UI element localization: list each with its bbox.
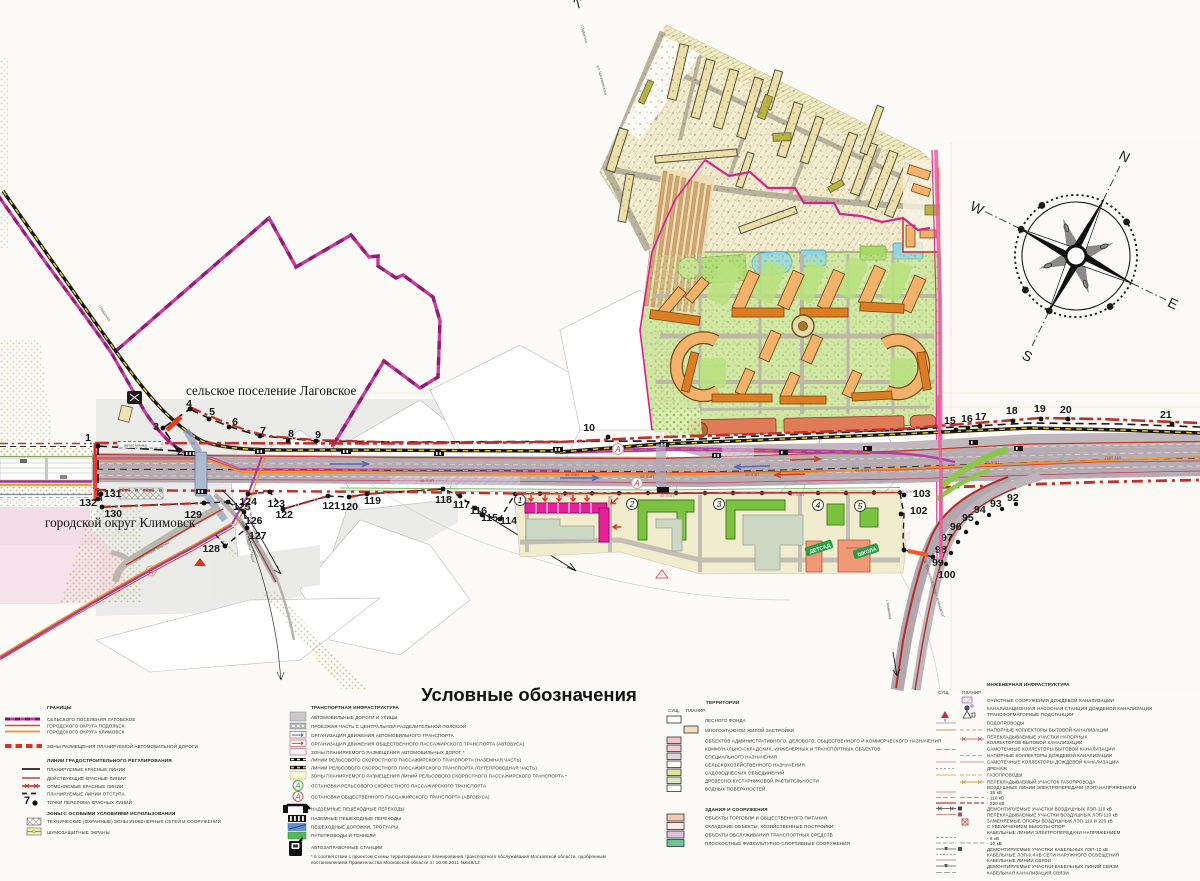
svg-text:ТЕРРИТОРИИ: ТЕРРИТОРИИ: [706, 700, 740, 705]
svg-text:- 35 кВ: - 35 кВ: [987, 790, 1002, 795]
svg-text:КАБЕЛЬНЫЕ ЛИНИИ ЭЛЕКТРОПЕРЕДАЧ: КАБЕЛЬНЫЕ ЛИНИИ ЭЛЕКТРОПЕРЕДАЧИ НАПРЯЖЕН…: [987, 830, 1121, 835]
svg-text:4: 4: [186, 398, 192, 410]
svg-text:САМОТЕЧНЫЕ КОЛЛЕКТОРЫ БЫТОВОЙ: САМОТЕЧНЫЕ КОЛЛЕКТОРЫ БЫТОВОЙ КАНАЛИЗАЦИ…: [987, 745, 1115, 752]
svg-text:ОСТАНОВКИ ОБЩЕСТВЕННОГО ПАССАЖ: ОСТАНОВКИ ОБЩЕСТВЕННОГО ПАССАЖИРСКОГО ТР…: [311, 795, 490, 800]
svg-text:45 ЛЭП: 45 ЛЭП: [560, 493, 574, 498]
svg-text:ДЕЙСТВУЮЩИЕ КРАСНЫЕ ЛИНИИ: ДЕЙСТВУЮЩИЕ КРАСНЫЕ ЛИНИИ: [47, 774, 126, 781]
svg-text:45 ЛЭП: 45 ЛЭП: [420, 478, 434, 483]
svg-text:2: 2: [629, 499, 635, 509]
svg-text:С УВЕЛИЧЕНИЕМ ВЫСОТЫ ОПОР: С УВЕЛИЧЕНИЕМ ВЫСОТЫ ОПОР: [987, 824, 1065, 829]
svg-text:ЗДАНИЯ И СООРУЖЕНИЯ: ЗДАНИЯ И СООРУЖЕНИЯ: [705, 807, 768, 812]
svg-text:* в соответствии с проектом Сх: * в соответствии с проектом Схемы террит…: [311, 853, 606, 859]
svg-text:МНОГОЭТАЖНОЙ ЖИЛОЙ ЗАСТРОЙКИ: МНОГОЭТАЖНОЙ ЖИЛОЙ ЗАСТРОЙКИ: [705, 726, 794, 733]
svg-text:КОММУНАЛЬНО-СКЛАДСКИХ, ИНЖЕНЕР: КОММУНАЛЬНО-СКЛАДСКИХ, ИНЖЕНЕРНЫХ И ТРАН…: [705, 747, 881, 752]
svg-text:- 110 кВ: - 110 кВ: [987, 796, 1004, 801]
svg-text:8: 8: [288, 428, 294, 440]
svg-text:ДЕМОНТИРУЕМЫЕ УЧАСТКИ ВОЗДУШНЫ: ДЕМОНТИРУЕМЫЕ УЧАСТКИ ВОЗДУШНЫХ ЛЭП-110 …: [987, 807, 1112, 812]
svg-text:САМОТЕЧНЫЕ КОЛЛЕКТОРЫ ДОЖДЕВОЙ: САМОТЕЧНЫЕ КОЛЛЕКТОРЫ ДОЖДЕВОЙ КАНАЛИЗАЦ…: [987, 758, 1119, 765]
svg-text:ВОЗДУШНЫЕ ЛИНИИ ЭЛЕКТРОПЕРЕДАЧ: ВОЗДУШНЫЕ ЛИНИИ ЭЛЕКТРОПЕРЕДАЧИ (ЛЭП) НА…: [987, 785, 1137, 790]
svg-text:1: 1: [518, 495, 523, 505]
svg-text:19: 19: [1034, 403, 1046, 415]
svg-text:САДОВОДЧЕСКИХ ОБЪЕДИНЕНИЙ: САДОВОДЧЕСКИХ ОБЪЕДИНЕНИЙ: [705, 769, 784, 776]
svg-text:ЛИНИИ ГРАДОСТРОИТЕЛЬНОГО РЕГУЛ: ЛИНИИ ГРАДОСТРОИТЕЛЬНОГО РЕГУЛИРОВАНИЯ: [47, 758, 172, 763]
svg-text:ЛЭП 110: ЛЭП 110: [1105, 455, 1122, 460]
svg-text:СПЕЦИАЛЬНОГО НАЗНАЧЕНИЯ: СПЕЦИАЛЬНОГО НАЗНАЧЕНИЯ: [705, 755, 777, 760]
svg-text:9: 9: [315, 429, 321, 441]
svg-text:ГОРОДСКОГО ОКРУГА ПОДОЛЬСК: ГОРОДСКОГО ОКРУГА ПОДОЛЬСК: [47, 724, 125, 729]
svg-text:ОБЪЕКТЫ ОБСЛУЖИВАНИЯ ТРАНСПОРТ: ОБЪЕКТЫ ОБСЛУЖИВАНИЯ ТРАНСПОРТНЫХ СРЕДСТ…: [705, 833, 833, 838]
svg-text:97: 97: [941, 532, 953, 544]
svg-text:ЛИНИИ РЕЛЬСОВОГО СКОРОСТНОГО П: ЛИНИИ РЕЛЬСОВОГО СКОРОСТНОГО ПАССАЖИРСКО…: [311, 766, 537, 771]
svg-text:НАЗЕМНЫЕ ПЕШЕХОДНЫЕ ПЕРЕХОДЫ: НАЗЕМНЫЕ ПЕШЕХОДНЫЕ ПЕРЕХОДЫ: [311, 816, 401, 821]
svg-text:НАПОРНЫЕ КОЛЛЕКТОРЫ ДОЖДЕВОЙ К: НАПОРНЫЕ КОЛЛЕКТОРЫ ДОЖДЕВОЙ КАНАЛИЗАЦИИ: [987, 751, 1112, 758]
svg-text:постановлением Правительства М: постановлением Правительства Московской …: [311, 859, 480, 865]
svg-text:ПЕШЕХОДНЫЕ ДОРОЖКИ, ТРОТУАРЫ: ПЕШЕХОДНЫЕ ДОРОЖКИ, ТРОТУАРЫ: [311, 825, 398, 830]
svg-text:КОЛЛЕКТОРОВ БЫТОВОЙ КАНАЛИЗАЦИ: КОЛЛЕКТОРОВ БЫТОВОЙ КАНАЛИЗАЦИИ: [987, 738, 1082, 745]
svg-text:АВТОЗАПРАВОЧНЫЕ СТАНЦИИ: АВТОЗАПРАВОЧНЫЕ СТАНЦИИ: [311, 845, 383, 850]
svg-text:ЗАМЕНЯЕМЫЕ ОПОРЫ ВОЗДУШНЫХ ЛЭП: ЗАМЕНЯЕМЫЕ ОПОРЫ ВОЗДУШНЫХ ЛЭП-110 И 220…: [987, 819, 1113, 824]
svg-text:ДРЕНАЖ: ДРЕНАЖ: [987, 766, 1008, 771]
svg-text:ПЕРЕКЛАДЫВАЕМЫЙ УЧАСТОК ГАЗОПР: ПЕРЕКЛАДЫВАЕМЫЙ УЧАСТОК ГАЗОПРОВОДА: [987, 778, 1095, 785]
svg-text:ГОРОДСКОГО ОКРУГА КЛИМОВСК: ГОРОДСКОГО ОКРУГА КЛИМОВСК: [47, 730, 125, 735]
svg-text:1: 1: [85, 432, 91, 444]
svg-text:ЛИНИИ РЕЛЬСОВОГО СКОРОСТНОГО П: ЛИНИИ РЕЛЬСОВОГО СКОРОСТНОГО ПАССАЖИРСКО…: [311, 758, 522, 763]
svg-text:ШУМОЗАЩИТНЫЕ ЭКРАНЫ: ШУМОЗАЩИТНЫЕ ЭКРАНЫ: [47, 830, 110, 835]
svg-text:118: 118: [435, 494, 452, 506]
svg-text:15: 15: [944, 415, 956, 427]
svg-text:45 ЛЭП: 45 ЛЭП: [565, 472, 579, 477]
svg-text:ПЛАНИР.: ПЛАНИР.: [686, 708, 706, 713]
svg-text:ГАЗОПРОВОДЫ: ГАЗОПРОВОДЫ: [987, 773, 1023, 778]
svg-text:4: 4: [816, 500, 821, 510]
svg-text:94: 94: [974, 504, 986, 516]
svg-text:СУЩ.: СУЩ.: [668, 708, 680, 713]
svg-text:ТРАНСПОРТНАЯ ИНФРАСТРУКТУРА: ТРАНСПОРТНАЯ ИНФРАСТРУКТУРА: [311, 705, 399, 710]
svg-text:ПЕРЕКЛАДЫВАЕМЫЕ УЧАСТКИ НАПОР: ПЕРЕКЛАДЫВАЕМЫЕ УЧАСТКИ НАПОРНЫХ: [987, 735, 1088, 740]
svg-text:ВОДОПРОВОДЫ: ВОДОПРОВОДЫ: [987, 721, 1024, 726]
svg-text:ПЛАНИРУЕМЫЕ КРАСНЫЕ ЛИНИИ: ПЛАНИРУЕМЫЕ КРАСНЫЕ ЛИНИИ: [47, 767, 125, 772]
svg-text:ДРЕВЕСНО-КУСТАРНИКОВОЙ РАСТИТЕ: ДРЕВЕСНО-КУСТАРНИКОВОЙ РАСТИТЕЛЬНОСТИ: [705, 777, 819, 784]
svg-text:128: 128: [202, 543, 220, 555]
svg-text:45 ЛЭП: 45 ЛЭП: [660, 493, 674, 498]
svg-text:ПУТЕПРОВОДЫ И ТОННЕЛИ: ПУТЕПРОВОДЫ И ТОННЕЛИ: [311, 833, 376, 838]
svg-text:7: 7: [24, 795, 30, 807]
svg-text:ЛЕСНОГО ФОНДА: ЛЕСНОГО ФОНДА: [705, 718, 746, 723]
svg-text:городской округ Климовск: городской округ Климовск: [45, 515, 196, 530]
svg-text:121: 121: [322, 500, 340, 512]
svg-text:КАБЕЛЬНЫЕ ЛЭП-0,4 кВ СЕТИ НАРУ: КАБЕЛЬНЫЕ ЛЭП-0,4 кВ СЕТИ НАРУЖНОГО ОСВЕ…: [987, 853, 1119, 858]
svg-text:119: 119: [364, 495, 381, 507]
svg-text:ВОДНЫХ ПОВЕРХНОСТЕЙ: ВОДНЫХ ПОВЕРХНОСТЕЙ: [705, 785, 765, 792]
svg-text:А: А: [294, 782, 300, 791]
svg-text:93: 93: [990, 498, 1002, 510]
svg-text:120: 120: [340, 501, 358, 513]
svg-text:20: 20: [1060, 404, 1072, 416]
svg-text:автостоянка: автостоянка: [124, 443, 147, 448]
svg-text:102: 102: [910, 505, 928, 517]
svg-text:СЕЛЬСКОХОЗЯЙСТВЕННОГО НАЗНАЧЕН: СЕЛЬСКОХОЗЯЙСТВЕННОГО НАЗНАЧЕНИЯ: [705, 761, 805, 768]
svg-text:ЗОНЫ С ОСОБЫМИ УСЛОВИЯМИ ИСПОЛ: ЗОНЫ С ОСОБЫМИ УСЛОВИЯМИ ИСПОЛЬЗОВАНИЯ: [47, 811, 176, 816]
svg-text:2: 2: [177, 446, 183, 458]
svg-text:122: 122: [275, 509, 293, 521]
svg-text:- 10 кВ: - 10 кВ: [987, 841, 1002, 846]
svg-text:ОСТАНОВКИ РЕЛЬСОВОГО СКОРОСТНО: ОСТАНОВКИ РЕЛЬСОВОГО СКОРОСТНОГО ПАССАЖИ…: [311, 784, 486, 789]
svg-text:18: 18: [1006, 405, 1018, 417]
svg-text:ПЛАНИР.: ПЛАНИР.: [962, 690, 982, 695]
svg-text:А: А: [633, 479, 639, 488]
svg-text:16: 16: [961, 413, 973, 425]
svg-text:3: 3: [717, 499, 722, 509]
svg-text:5: 5: [209, 406, 215, 418]
svg-text:95: 95: [962, 512, 974, 524]
svg-text:СУЩ.: СУЩ.: [938, 690, 950, 695]
svg-text:ЗОНЫ ПЛАНИРУЕМОГО РАЗМЕЩЕНИЯ А: ЗОНЫ ПЛАНИРУЕМОГО РАЗМЕЩЕНИЯ АВТОМОБИЛЬН…: [311, 750, 465, 755]
svg-text:21: 21: [1160, 409, 1172, 421]
svg-text:ПЛОСКОСТНЫЕ ФИЗКУЛЬТУРНО-СПОРТ: ПЛОСКОСТНЫЕ ФИЗКУЛЬТУРНО-СПОРТИВНЫЕ СООР…: [705, 841, 850, 846]
svg-text:ПЕРЕКЛАДЫВАЕМЫЕ УЧАСТКИ ВОЗДУ: ПЕРЕКЛАДЫВАЕМЫЕ УЧАСТКИ ВОЗДУШНЫХ ЛЭП-11…: [987, 813, 1118, 818]
svg-text:100: 100: [938, 569, 956, 581]
svg-text:45 ЛЭП: 45 ЛЭП: [855, 468, 869, 473]
svg-text:132: 132: [79, 497, 97, 509]
svg-text:ТЕХНИЧЕСКИЕ (ОХРАННЫЕ) ЗОНЫ ИН: ТЕХНИЧЕСКИЕ (ОХРАННЫЕ) ЗОНЫ ИНЖЕНЕРНЫХ С…: [47, 817, 221, 824]
svg-text:А: А: [294, 793, 300, 802]
svg-text:ЗОНЫ РАЗМЕЩЕНИЯ ПЛАНИРУЕМОЙ АВ: ЗОНЫ РАЗМЕЩЕНИЯ ПЛАНИРУЕМОЙ АВТОМОБИЛЬНО…: [47, 742, 198, 749]
svg-text:АВТОМОБИЛЬНЫЕ ДОРОГИ И УЛИЦЫ: АВТОМОБИЛЬНЫЕ ДОРОГИ И УЛИЦЫ: [311, 715, 398, 720]
svg-text:КАНАЛИЗАЦИОННАЯ НАСОСНАЯ СТАНЦ: КАНАЛИЗАЦИОННАЯ НАСОСНАЯ СТАНЦИЯ ДОЖДЕВО…: [987, 704, 1152, 711]
svg-text:ГРАНИЦЫ: ГРАНИЦЫ: [47, 705, 72, 710]
svg-text:сельское поселение Лаговское: сельское поселение Лаговское: [186, 383, 356, 398]
svg-text:3: 3: [153, 421, 159, 433]
svg-text:45 ЛЭП: 45 ЛЭП: [900, 489, 914, 494]
svg-text:ТОЧКИ ПЕРЕЛОМА КРАСНЫХ ЛИНИЙ: ТОЧКИ ПЕРЕЛОМА КРАСНЫХ ЛИНИЙ: [47, 798, 132, 805]
svg-text:ПЛАНИРУЕМЫЕ ЛИНИИ ОТСТУПА: ПЛАНИРУЕМЫЕ ЛИНИИ ОТСТУПА: [47, 792, 125, 797]
svg-text:ОЧИСТНЫЕ СООРУЖЕНИЯ ДОЖДЕВОЙ К: ОЧИСТНЫЕ СООРУЖЕНИЯ ДОЖДЕВОЙ КАНАЛИЗАЦИИ: [987, 696, 1114, 703]
svg-text:ПРОЕЗЖАЯ ЧАСТЬ С ЦЕНТРАЛЬНОЙ Р: ПРОЕЗЖАЯ ЧАСТЬ С ЦЕНТРАЛЬНОЙ РАЗДЕЛИТЕЛЬ…: [311, 722, 466, 729]
svg-text:45 ЛЭП: 45 ЛЭП: [985, 460, 999, 465]
svg-text:ЗОНЫ ПЛАНИРУЕМОГО РАЗМЕЩЕНИЯ Л: ЗОНЫ ПЛАНИРУЕМОГО РАЗМЕЩЕНИЯ ЛИНИЙ РЕЛЬС…: [311, 772, 567, 779]
svg-text:КАБЕЛЬНЫЕ ЛИНИИ СВЯЗИ: КАБЕЛЬНЫЕ ЛИНИИ СВЯЗИ: [987, 858, 1051, 863]
svg-text:ОРГАНИЗАЦИЯ ДВИЖЕНИЯ ОБЩЕСТВЕН: ОРГАНИЗАЦИЯ ДВИЖЕНИЯ ОБЩЕСТВЕННОГО ПАССА…: [311, 742, 525, 747]
svg-text:ОБЪЕКТОВ АДМИНИСТРАТИВНОГО, ДЕ: ОБЪЕКТОВ АДМИНИСТРАТИВНОГО, ДЕЛОВОГО, ОБ…: [705, 739, 941, 744]
svg-text:45 ЛЭП: 45 ЛЭП: [790, 492, 804, 497]
svg-text:45 ЛЭП: 45 ЛЭП: [745, 472, 759, 477]
svg-text:ДЕМОНТИРУЕМЫЕ УЧАСТКИ КАБЕЛЬН: ДЕМОНТИРУЕМЫЕ УЧАСТКИ КАБЕЛЬНЫХ ЛИНИЙ СВ…: [987, 862, 1119, 869]
svg-text:НАДЗЕМНЫЕ ПЕШЕХОДНЫЕ ПЕРЕХОДЫ: НАДЗЕМНЫЕ ПЕШЕХОДНЫЕ ПЕРЕХОДЫ: [311, 807, 405, 812]
svg-text:А: А: [614, 445, 620, 454]
svg-text:СЕЛЬСКОГО ПОСЕЛЕНИЯ ЛАГОВСКОЕ: СЕЛЬСКОГО ПОСЕЛЕНИЯ ЛАГОВСКОЕ: [47, 717, 136, 722]
svg-text:ДЕМОНТИРУЕМЫЕ УЧАСТКИ КАБЕЛЬНЫ: ДЕМОНТИРУЕМЫЕ УЧАСТКИ КАБЕЛЬНЫХ ЛЭП-10 к…: [987, 847, 1108, 852]
svg-text:ИНЖЕНЕРНАЯ ИНФРАСТРУКТУРА: ИНЖЕНЕРНАЯ ИНФРАСТРУКТУРА: [987, 682, 1070, 687]
svg-text:5: 5: [858, 501, 863, 511]
svg-text:131: 131: [104, 488, 122, 500]
svg-text:НАПОРНЫЕ КОЛЛЕКТОРЫ БЫТОВОЙ КА: НАПОРНЫЕ КОЛЛЕКТОРЫ БЫТОВОЙ КАНАЛИЗАЦИИ: [987, 726, 1108, 733]
svg-text:10: 10: [583, 422, 595, 434]
svg-text:92: 92: [1007, 492, 1019, 504]
svg-text:117: 117: [453, 499, 470, 511]
svg-text:103: 103: [913, 488, 931, 500]
svg-text:17: 17: [975, 411, 987, 423]
svg-text:7: 7: [260, 425, 266, 437]
svg-text:ОРГАНИЗАЦИЯ ДВИЖЕНИЯ АВТОМОБИЛ: ОРГАНИЗАЦИЯ ДВИЖЕНИЯ АВТОМОБИЛЬНОГО ТРАН…: [311, 733, 454, 738]
svg-text:- 220 кВ: - 220 кВ: [987, 801, 1004, 806]
svg-text:ОБЪЕКТЫ ТОРГОВЛИ И ОБЩЕСТВЕННО: ОБЪЕКТЫ ТОРГОВЛИ И ОБЩЕСТВЕННОГО ПИТАНИЯ: [705, 816, 827, 821]
svg-text:45 ЛЭП: 45 ЛЭП: [640, 474, 654, 479]
svg-text:6: 6: [232, 416, 238, 428]
svg-text:КАБЕЛЬНАЯ КАНАЛИЗАЦИЯ СВЯЗИ: КАБЕЛЬНАЯ КАНАЛИЗАЦИЯ СВЯЗИ: [987, 871, 1069, 876]
svg-text:Условные обозначения: Условные обозначения: [421, 684, 637, 705]
svg-text:ТРАНСФОРМАТОРНЫЕ ПОДСТАНЦИИ: ТРАНСФОРМАТОРНЫЕ ПОДСТАНЦИИ: [987, 712, 1073, 717]
svg-text:ОТМЕНЯЕМЫЕ КРАСНЫЕ ЛИНИИ: ОТМЕНЯЕМЫЕ КРАСНЫЕ ЛИНИИ: [47, 784, 123, 789]
svg-text:СКЛАДСКИЕ ОБЪЕКТЫ, ХОЗЯЙСТВЕН: СКЛАДСКИЕ ОБЪЕКТЫ, ХОЗЯЙСТВЕННЫЕ ПОСТРОЙ…: [705, 822, 833, 829]
